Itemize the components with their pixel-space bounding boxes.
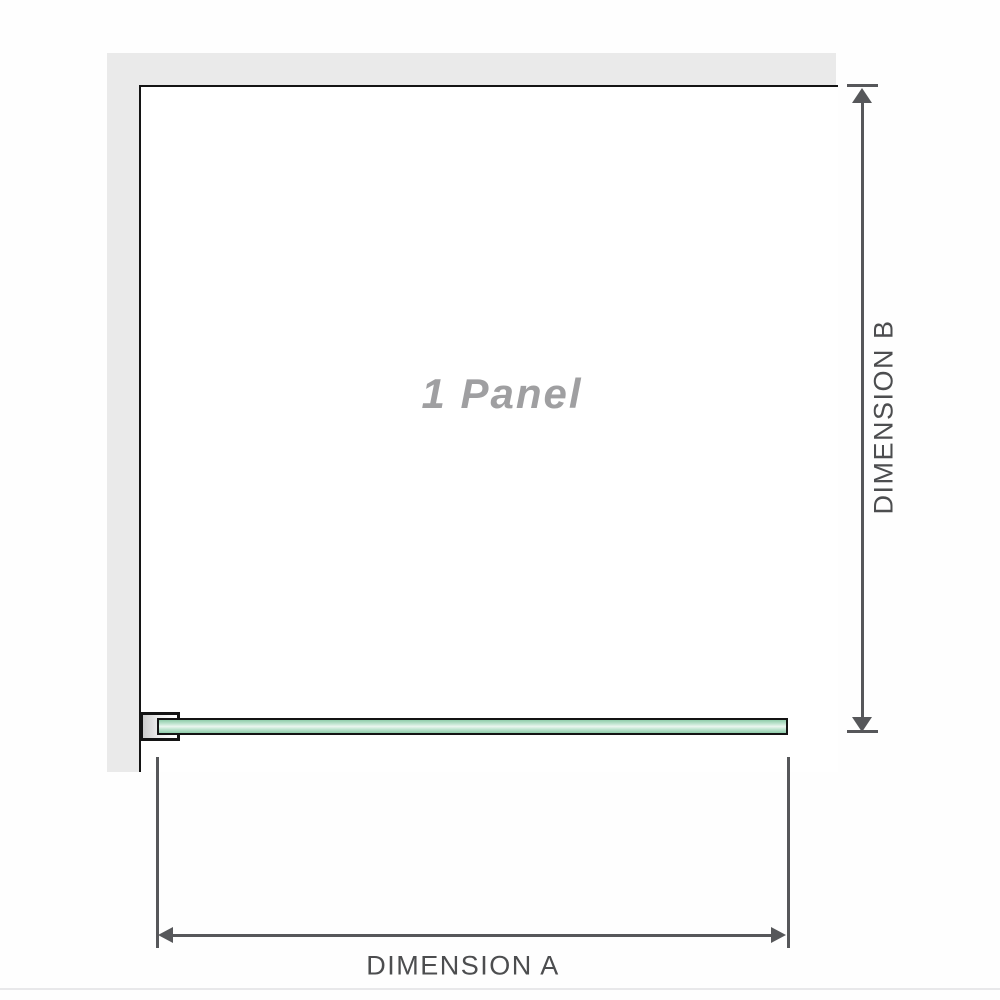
dimension-b-label: DIMENSION B <box>869 319 900 514</box>
dim-a-right-extension-line <box>787 757 790 948</box>
panel-area-outline <box>139 85 838 772</box>
panel-label: 1 Panel <box>421 370 582 418</box>
dim-a-left-extension-line <box>156 757 159 948</box>
dim-b-line <box>861 100 864 720</box>
dim-a-line <box>170 934 775 937</box>
dimension-a-label: DIMENSION A <box>366 951 560 982</box>
dim-b-bottom-tick <box>847 730 878 733</box>
bottom-divider-rule <box>0 988 1000 990</box>
shower-panel-dimension-diagram: 1 Panel DIMENSION B DIMENSION A <box>0 0 1000 1000</box>
dim-b-top-tick <box>847 84 878 87</box>
glass-panel-bar <box>157 718 788 735</box>
dim-b-arrow-up-icon <box>852 88 872 103</box>
dim-a-arrow-left-icon <box>158 927 173 943</box>
wall-left-strip <box>107 53 139 772</box>
wall-top-strip <box>107 53 836 85</box>
dim-a-arrow-right-icon <box>771 927 786 943</box>
